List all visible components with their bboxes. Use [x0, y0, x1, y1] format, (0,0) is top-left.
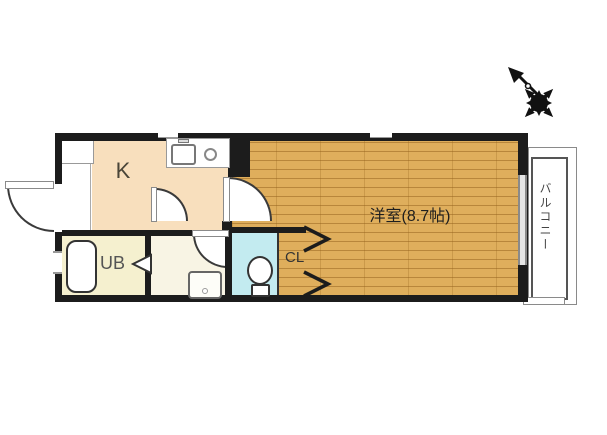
unit-bath-label: UB: [100, 253, 125, 274]
sink-icon: [171, 144, 196, 165]
western-room-label: 洋室(8.7帖): [335, 202, 485, 226]
entrance-door-swing: [7, 185, 54, 232]
washroom-toilet-wall: [225, 227, 232, 297]
kitchen-room-door-leaf: [223, 177, 230, 222]
washing-machine-icon: [188, 271, 222, 299]
entrance-door-leaf: [5, 181, 54, 189]
closet-doors-icon: [299, 223, 335, 301]
bath-door-icon: [130, 252, 154, 278]
room-top-window: [370, 133, 392, 138]
balcony-label: バルコニー: [537, 182, 554, 277]
faucet-icon: [178, 139, 189, 143]
kitchen-room-wall: [228, 133, 250, 177]
top-wall: [55, 133, 528, 141]
washing-machine-dial: [202, 288, 208, 294]
kitchen-label: K: [108, 158, 138, 184]
toilet-closet-top-wall: [225, 227, 306, 233]
bath-window: [53, 251, 62, 274]
stove-burner-icon: [204, 148, 217, 161]
balcony-partition: [523, 297, 565, 305]
toilet-closet-line: [277, 233, 279, 295]
floor-plan: K UB CL 洋室(8.7帖) バルコニー: [0, 0, 607, 435]
closet-label: CL: [285, 249, 304, 266]
shoe-cabinet: [60, 138, 94, 164]
entrance-floor: [62, 164, 92, 230]
left-wall-upper: [55, 133, 62, 184]
compass-icon: [505, 66, 563, 126]
toilet-icon: [247, 256, 273, 285]
entrance-step-line: [90, 164, 91, 230]
bathtub-icon: [66, 240, 97, 293]
room-balcony-window: [518, 175, 527, 265]
toilet-tank-icon: [251, 284, 270, 297]
washroom-door-leaf: [192, 230, 229, 237]
bottom-wall: [55, 295, 520, 302]
kitchen-hall-door-leaf: [151, 187, 157, 222]
